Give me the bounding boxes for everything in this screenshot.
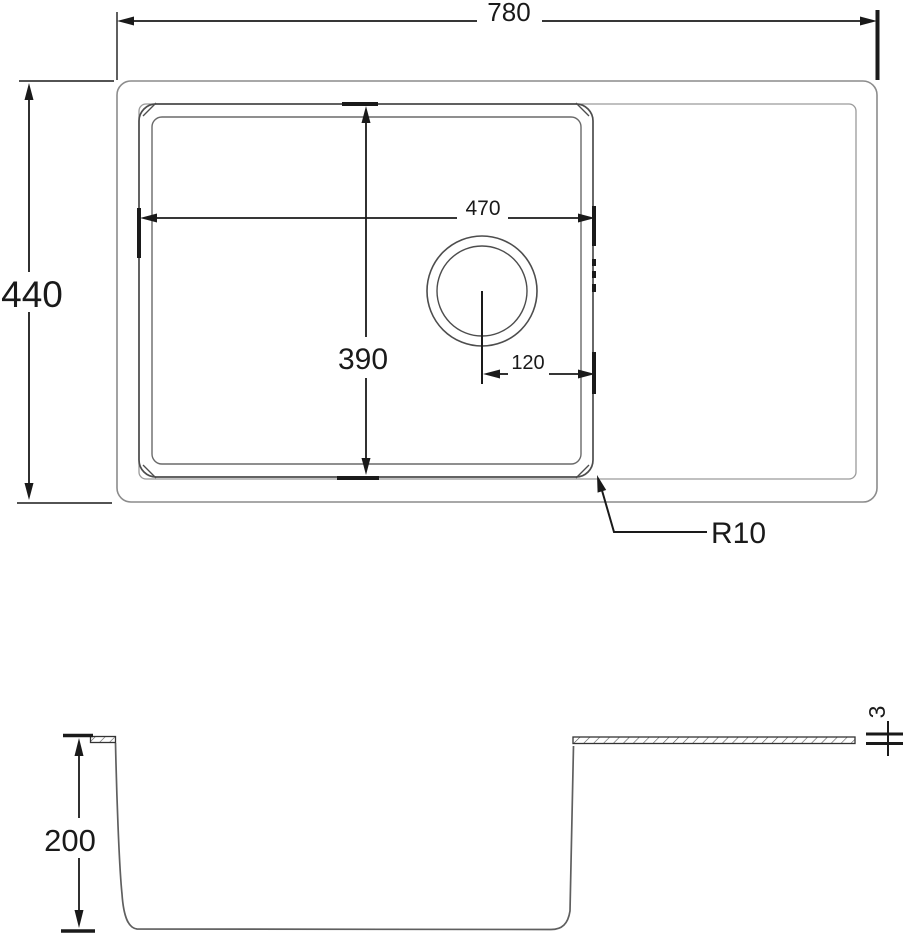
dim-label-corner-radius: R10 xyxy=(711,517,766,550)
dim-arrow-top xyxy=(25,83,34,100)
dim-label-bowl-height: 200 xyxy=(44,823,96,858)
sink-outer-edge xyxy=(117,81,877,502)
rim-section-left xyxy=(91,737,116,743)
dim-arrow-bottom xyxy=(362,458,371,475)
dim-label-bowl-depth: 390 xyxy=(338,343,388,376)
dim-label-drain-offset: 120 xyxy=(511,352,544,374)
bowl-section-profile xyxy=(116,743,574,930)
dim-arrow-bottom xyxy=(25,483,34,500)
dim-arrow-bottom xyxy=(75,910,84,928)
drawing-canvas: 780 440 470 xyxy=(0,0,904,936)
section-view: 200 3 xyxy=(44,706,903,931)
dim-arrow-left xyxy=(117,17,134,26)
dim-label-overall-depth: 440 xyxy=(1,274,63,315)
dim-bowl-depth xyxy=(337,104,379,478)
dim-rim-thickness xyxy=(866,721,903,756)
top-view: 780 440 470 xyxy=(1,0,877,550)
sink-drawing-svg: 780 440 470 xyxy=(0,0,904,936)
leader-line xyxy=(601,487,707,532)
dim-label-bowl-width: 470 xyxy=(465,197,500,220)
dim-arrow-right xyxy=(860,17,877,26)
dim-arrow-top xyxy=(362,106,371,123)
dim-arrow-left xyxy=(140,214,157,223)
dim-arrow-top xyxy=(75,738,84,756)
callout-corner-radius xyxy=(597,475,707,532)
dim-label-overall-width: 780 xyxy=(487,0,530,27)
drainer-section-deck xyxy=(573,737,855,744)
dim-arrow-left xyxy=(483,370,500,379)
leader-arrow xyxy=(597,475,606,493)
recess-edge xyxy=(139,104,856,479)
dim-label-rim-thickness: 3 xyxy=(864,706,890,719)
